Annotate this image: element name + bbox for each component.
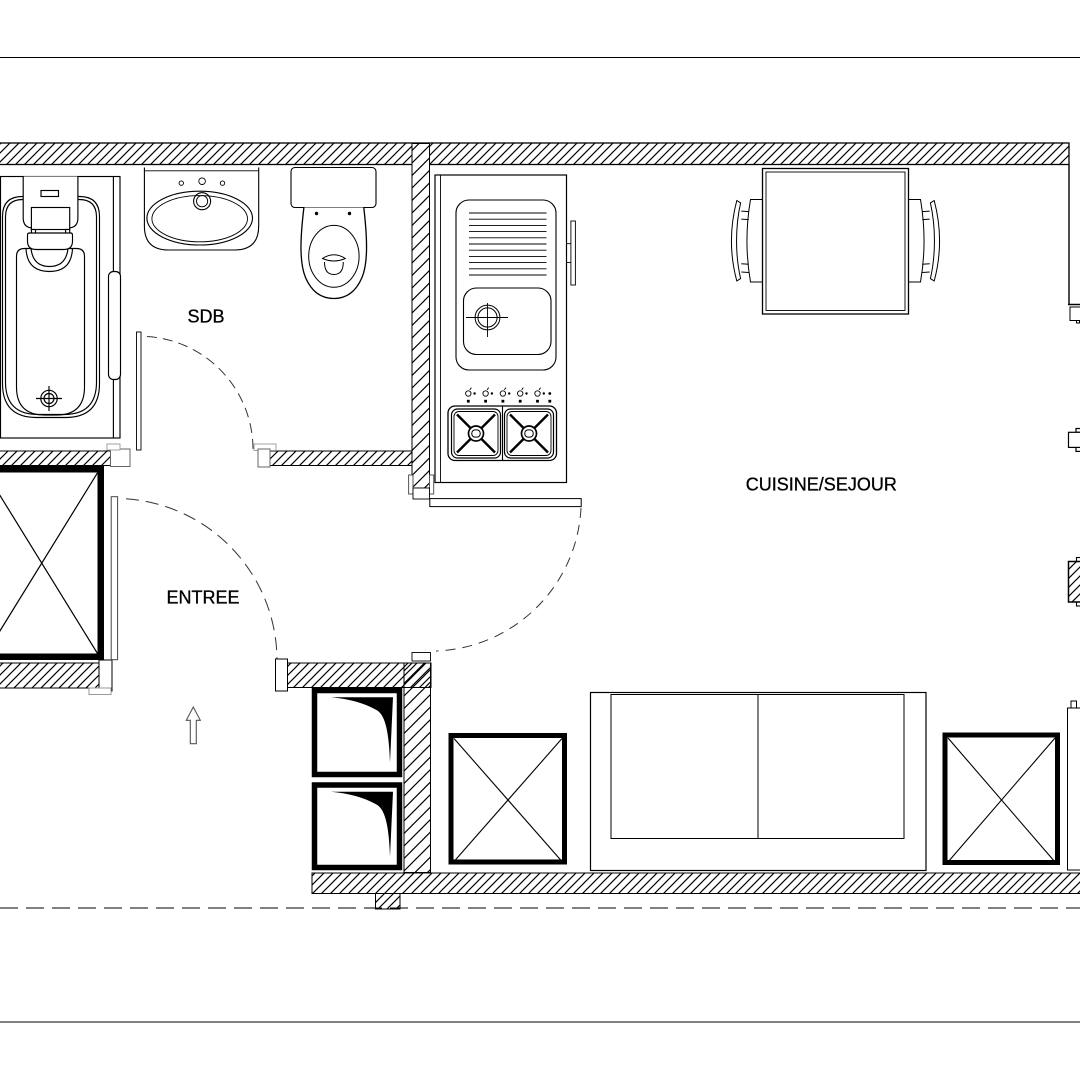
svg-text:SDB: SDB [188,307,225,327]
svg-text:CUISINE/SEJOUR: CUISINE/SEJOUR [746,474,897,494]
svg-text:ENTREE: ENTREE [167,587,240,607]
